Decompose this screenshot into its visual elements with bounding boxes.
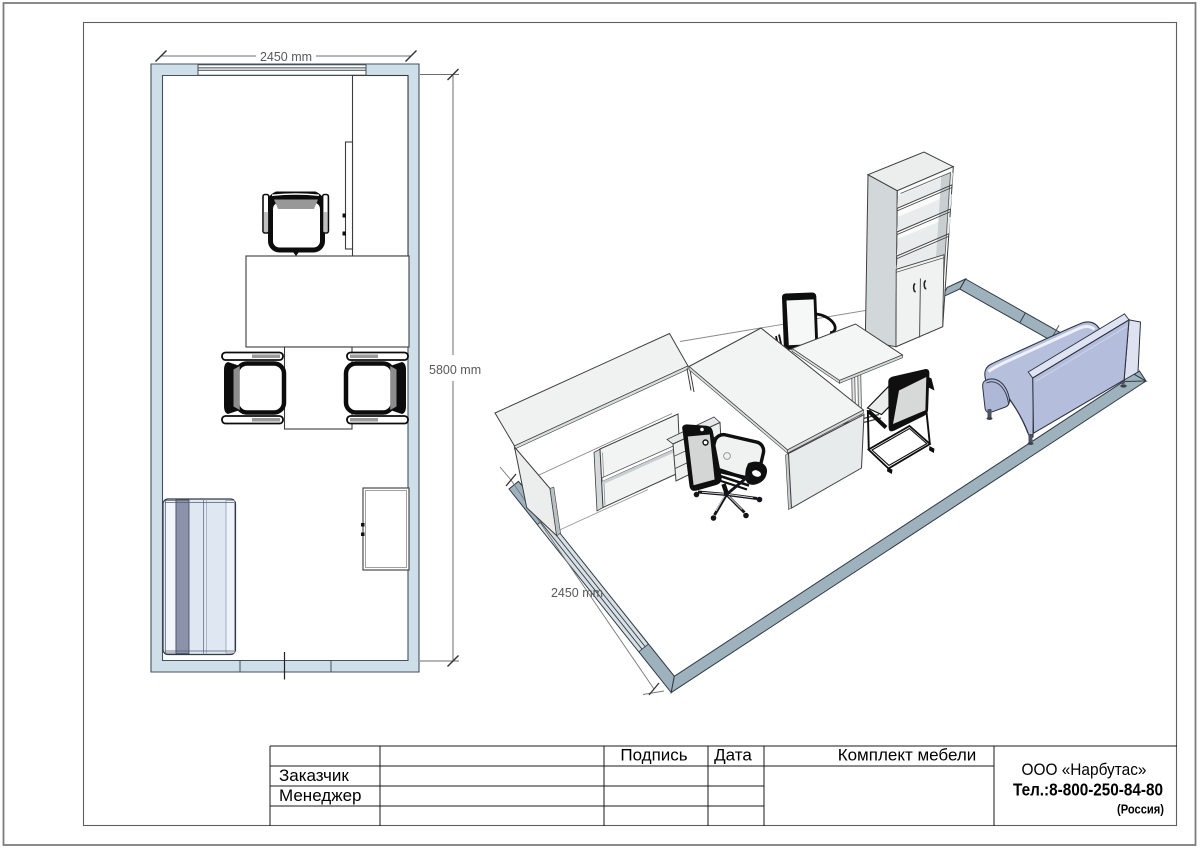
svg-text:2450 mm: 2450 mm: [260, 50, 312, 64]
svg-text:Заказчик: Заказчик: [279, 766, 349, 785]
svg-text:Менеджер: Менеджер: [279, 786, 361, 805]
svg-text:Дата: Дата: [714, 746, 752, 765]
svg-text:Тел.:8-800-250-84-80: Тел.:8-800-250-84-80: [1013, 780, 1163, 800]
svg-text:Комплект мебели: Комплект мебели: [838, 746, 977, 765]
svg-text:ООО «Нарбутас»: ООО «Нарбутас»: [1022, 760, 1147, 779]
svg-text:5800 mm: 5800 mm: [429, 363, 481, 377]
svg-text:2450 mm: 2450 mm: [551, 586, 603, 600]
svg-text:(Россия): (Россия): [1117, 803, 1164, 817]
svg-text:Подпись: Подпись: [620, 746, 687, 765]
